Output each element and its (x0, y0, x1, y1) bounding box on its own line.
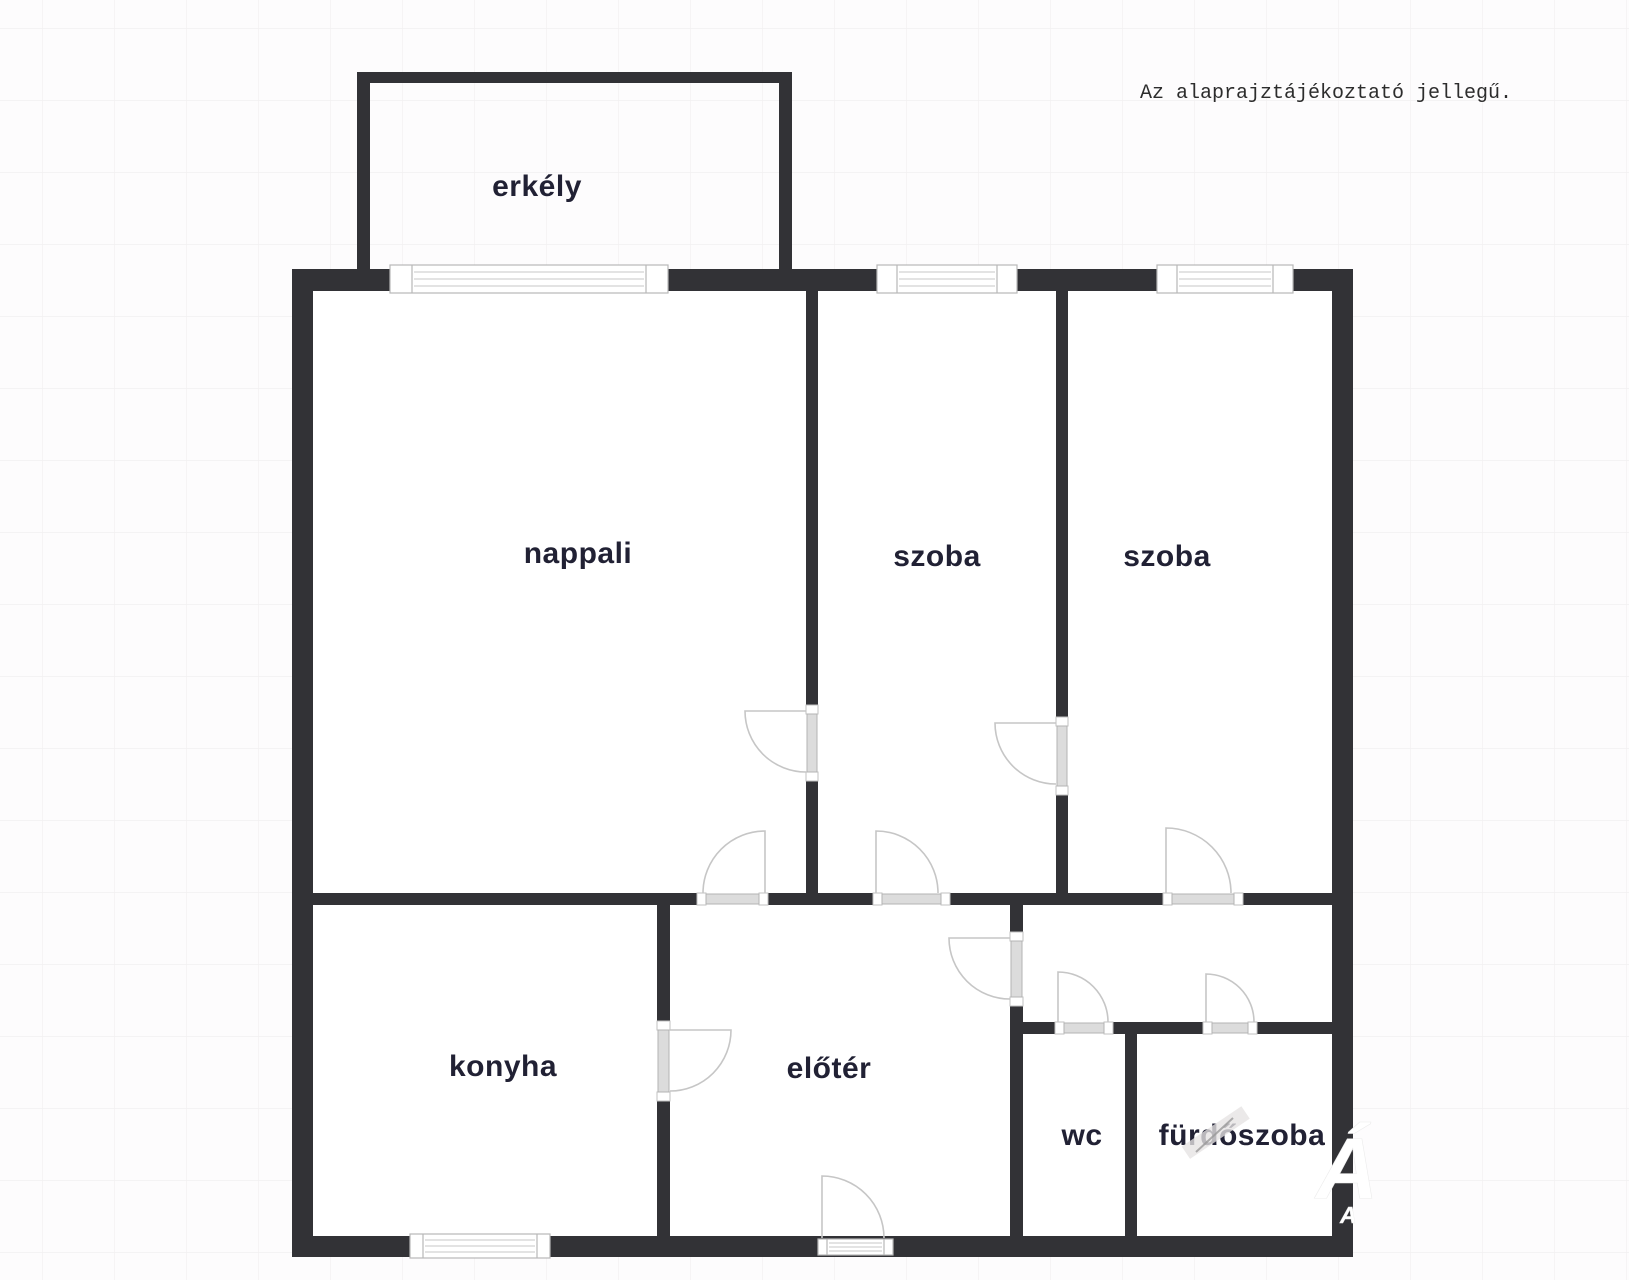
wall-corridor-bottom-1 (1023, 1022, 1055, 1034)
room-label-living: nappali (524, 537, 633, 570)
wall-kitchen-hall-b (657, 1101, 670, 1236)
room-label-room2: szoba (1123, 540, 1211, 573)
wall-corridor-bottom-3 (1257, 1022, 1332, 1034)
window-room1 (877, 265, 1017, 293)
room-label-kitchen: konyha (449, 1050, 557, 1083)
floor-plan-page: erkély nappali szoba szoba konyha előtér… (0, 0, 1629, 1280)
wall-mid-h-2 (768, 893, 873, 905)
wall-mid-h-4 (1243, 893, 1332, 905)
wall-balcony-left (357, 72, 370, 269)
wall-room1-room2-a (1056, 291, 1068, 717)
wall-balcony-right (779, 72, 792, 269)
wall-outer-left (292, 269, 313, 1257)
wall-living-room1-b (806, 781, 818, 893)
wall-outer-right (1332, 269, 1353, 1257)
wall-mid-h-1 (313, 893, 697, 905)
room-label-hall: előtér (787, 1052, 872, 1085)
window-kitchen (410, 1234, 550, 1258)
floor-plan-svg: erkély nappali szoba szoba konyha előtér… (0, 0, 1629, 1280)
wall-room1-room2-b (1056, 795, 1068, 893)
wall-living-room1-a (806, 291, 818, 705)
apartment-floor (302, 280, 1343, 1246)
wall-kitchen-hall-a (657, 905, 670, 1021)
disclaimer-text: Az alaprajztájékoztató jellegű. (1140, 82, 1512, 105)
room-label-balcony: erkély (492, 170, 582, 203)
room-label-wc: wc (1060, 1119, 1102, 1152)
room-label-room1: szoba (893, 540, 981, 573)
wall-hall-corridor-b (1010, 1006, 1023, 1236)
wall-mid-h-3 (950, 893, 1163, 905)
wall-balcony-top (357, 72, 792, 83)
wall-wc-bathroom (1125, 1034, 1137, 1236)
wall-hall-corridor-a (1010, 905, 1023, 932)
window-room2 (1157, 265, 1293, 293)
window-living (390, 265, 668, 293)
wall-corridor-bottom-2 (1113, 1022, 1203, 1034)
watermark-small-letter: A (1339, 1202, 1357, 1228)
